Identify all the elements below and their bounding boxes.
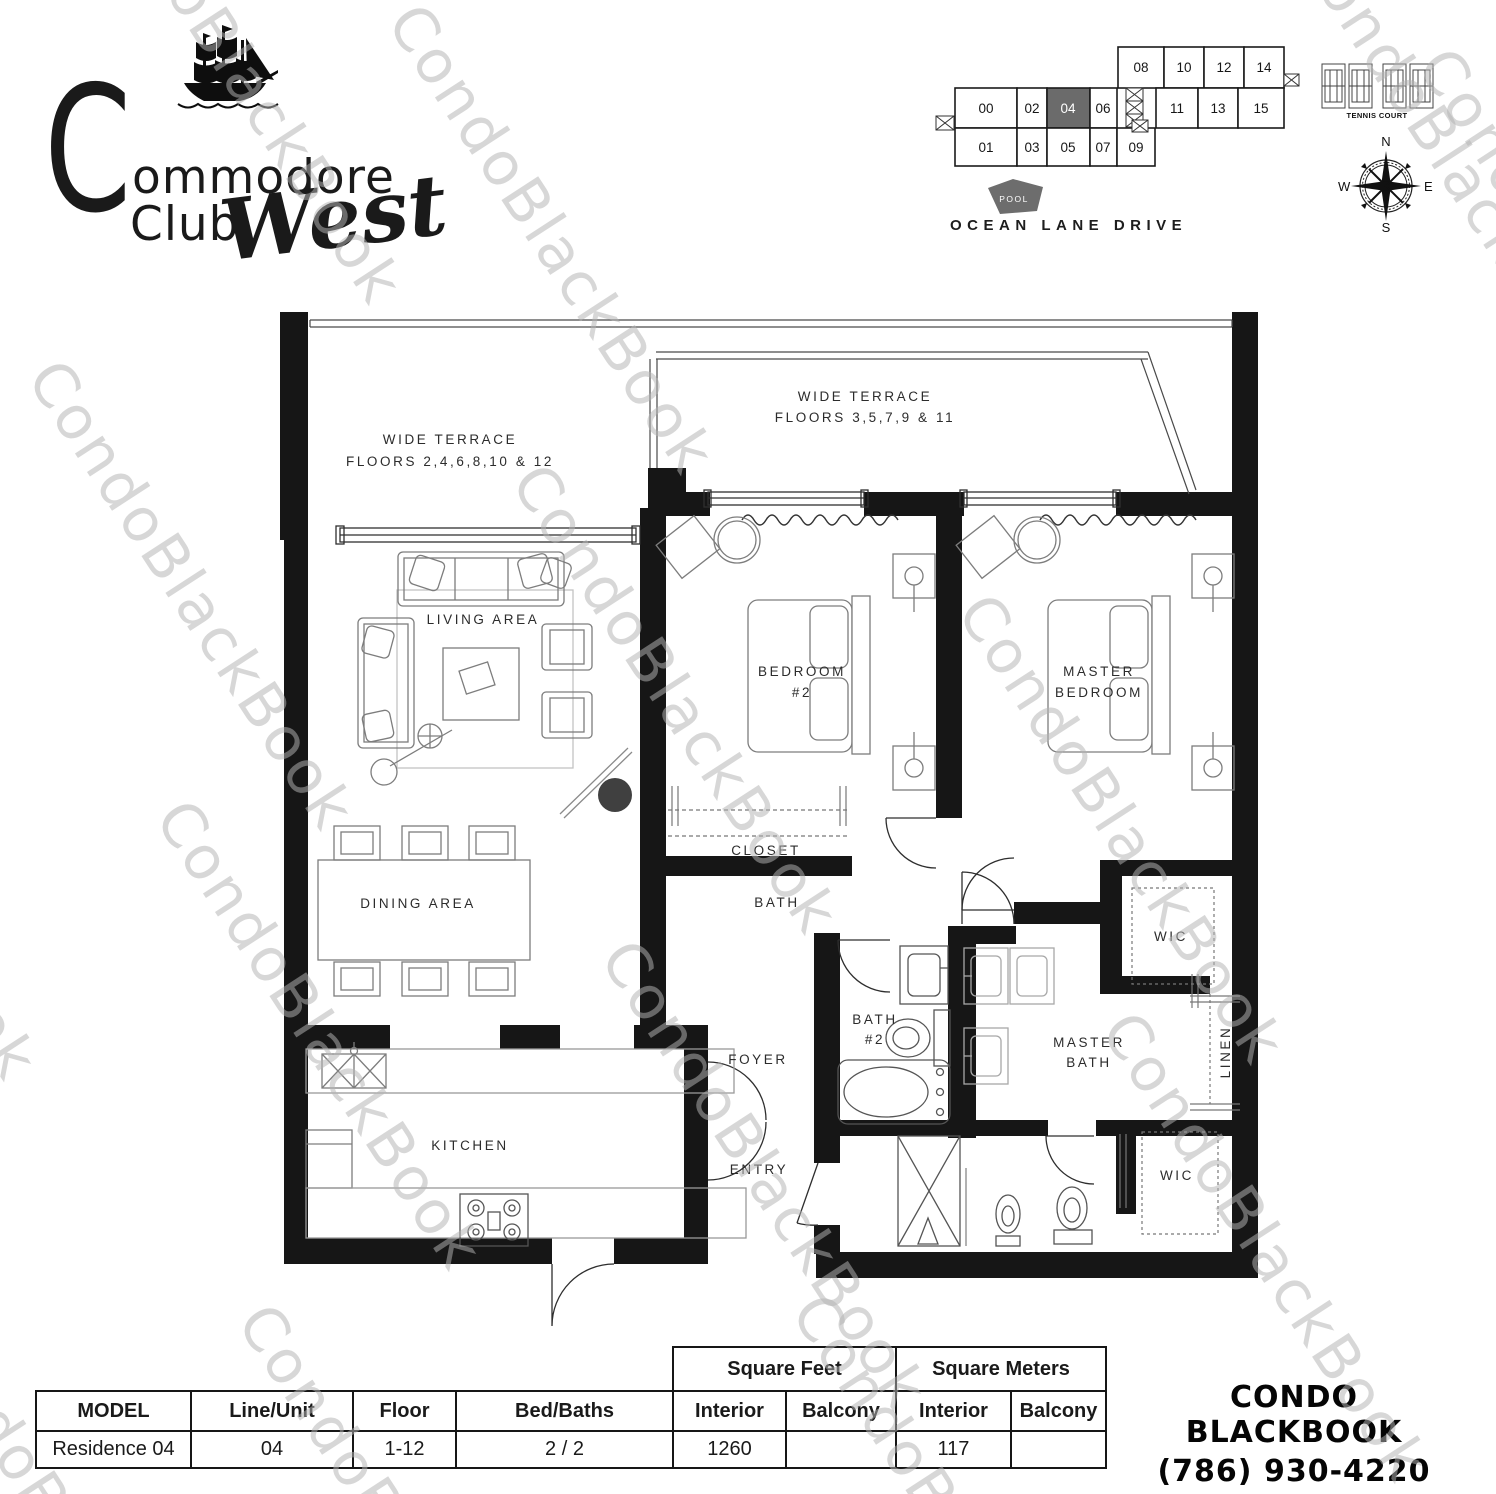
room-labels: WIDE TERRACE FLOORS 2,4,6,8,10 & 12 WIDE…: [346, 389, 1233, 1183]
floorplan-sheet: CondoBlackBook CondoBlackBook CondoBlack…: [0, 0, 1496, 1494]
col-sqm-interior: Interior: [896, 1391, 1011, 1431]
compass-s: S: [1382, 220, 1391, 235]
tennis-label: TENNIS COURT: [1346, 111, 1407, 120]
unit-number: 05: [1060, 140, 1075, 155]
table-row: Residence 04 04 1-12 2 / 2 1260 117: [36, 1431, 1106, 1468]
col-sqm-balcony: Balcony: [1011, 1391, 1106, 1431]
dining-area-label: DINING AREA: [360, 896, 476, 911]
logo-initial: C: [44, 64, 131, 238]
bath2-label: BATH: [852, 1012, 897, 1027]
terrace-right-sublabel: FLOORS 3,5,7,9 & 11: [775, 410, 955, 425]
compass-e: E: [1424, 179, 1433, 194]
cell-sqm-balcony: [1011, 1431, 1106, 1468]
cell-bed-baths: 2 / 2: [456, 1431, 673, 1468]
unit-number: 14: [1256, 60, 1272, 75]
master-bath-sublabel: BATH: [1066, 1055, 1111, 1070]
bath-label: BATH: [754, 895, 799, 910]
foyer-label: FOYER: [728, 1052, 788, 1067]
sqft-group-header: Square Feet: [673, 1347, 896, 1391]
brand-name: CONDO BLACKBOOK: [1118, 1380, 1470, 1450]
living-furniture: [358, 552, 632, 818]
floor-plan: WIDE TERRACE FLOORS 2,4,6,8,10 & 12 WIDE…: [270, 300, 1270, 1330]
unit-number: 07: [1095, 140, 1110, 155]
wic-top-label: WIC: [1154, 929, 1188, 944]
cell-floor: 1-12: [353, 1431, 456, 1468]
pool-marker: POOL: [988, 179, 1043, 214]
site-key-plan: 08 10 12 14 00 02 04 06 11 13 15 01 03 0…: [925, 38, 1470, 243]
compass-icon: N E S W: [1338, 134, 1433, 235]
bedroom2-sublabel: #2: [792, 685, 812, 700]
kitchen-fixtures: [306, 1042, 746, 1246]
master-bedroom-furniture: [956, 516, 1234, 790]
curtain-lines: [742, 515, 1196, 525]
unit-number: 03: [1024, 140, 1039, 155]
plant-icon: [598, 778, 632, 812]
unit-number: 09: [1128, 140, 1143, 155]
street-label: OCEAN LANE DRIVE: [950, 217, 1187, 234]
col-line-unit: Line/Unit: [191, 1391, 353, 1431]
unit-number: 06: [1095, 101, 1110, 116]
unit-number: 08: [1133, 60, 1148, 75]
master-bath-label: MASTER: [1053, 1035, 1125, 1050]
sqm-group-header: Square Meters: [896, 1347, 1106, 1391]
unit-number: 12: [1216, 60, 1231, 75]
unit-number: 10: [1176, 60, 1191, 75]
terrace-left-sublabel: FLOORS 2,4,6,8,10 & 12: [346, 454, 554, 469]
cell-line-unit: 04: [191, 1431, 353, 1468]
dining-furniture: [318, 826, 530, 996]
cell-sqm-interior: 117: [896, 1431, 1011, 1468]
master-bedroom-sublabel: BEDROOM: [1055, 685, 1143, 700]
compass-n: N: [1381, 134, 1390, 149]
bath2-sublabel: #2: [865, 1032, 885, 1047]
pool-label: POOL: [999, 194, 1029, 204]
unit-number: 11: [1170, 101, 1184, 116]
closet-detail: [668, 786, 850, 836]
master-bedroom-label: MASTER: [1063, 664, 1135, 679]
unit-number: 01: [978, 140, 993, 155]
closet-label: CLOSET: [731, 843, 801, 858]
wic-bottom-label: WIC: [1160, 1168, 1194, 1183]
bedroom2-furniture: [656, 516, 935, 790]
unit-spec-table: Square Feet Square Meters MODEL Line/Uni…: [35, 1346, 1107, 1469]
ship-icon: [178, 25, 278, 108]
linen-label: LINEN: [1218, 1026, 1233, 1079]
cell-model: Residence 04: [36, 1431, 191, 1468]
brand-phone: (786) 930-4220: [1118, 1454, 1470, 1489]
cell-sqft-balcony: [786, 1431, 896, 1468]
watermark-text: CondoBlackBook: [0, 598, 52, 1093]
unit-boxes: [955, 47, 1284, 166]
bedroom2-label: BEDROOM: [758, 664, 846, 679]
terrace-right-label: WIDE TERRACE: [798, 389, 932, 404]
footer-brand-block: CONDO BLACKBOOK (786) 930-4220: [1118, 1380, 1470, 1489]
living-area-label: LIVING AREA: [427, 612, 540, 627]
cell-sqft-interior: 1260: [673, 1431, 786, 1468]
col-sqft-interior: Interior: [673, 1391, 786, 1431]
col-floor: Floor: [353, 1391, 456, 1431]
col-sqft-balcony: Balcony: [786, 1391, 896, 1431]
unit-number: 02: [1024, 101, 1039, 116]
sliding-doors: [336, 490, 1120, 544]
col-model: MODEL: [36, 1391, 191, 1431]
unit-number-highlighted: 04: [1060, 101, 1076, 116]
unit-number: 15: [1253, 101, 1268, 116]
bath2-fixtures: [838, 946, 950, 1124]
col-bed-baths: Bed/Baths: [456, 1391, 673, 1431]
terrace-left-label: WIDE TERRACE: [383, 432, 517, 447]
tennis-court-icon: [1322, 64, 1433, 108]
unit-number: 00: [978, 101, 993, 116]
entry-label: ENTRY: [730, 1162, 789, 1177]
compass-w: W: [1338, 179, 1351, 194]
kitchen-label: KITCHEN: [431, 1138, 508, 1153]
unit-number: 13: [1210, 101, 1225, 116]
